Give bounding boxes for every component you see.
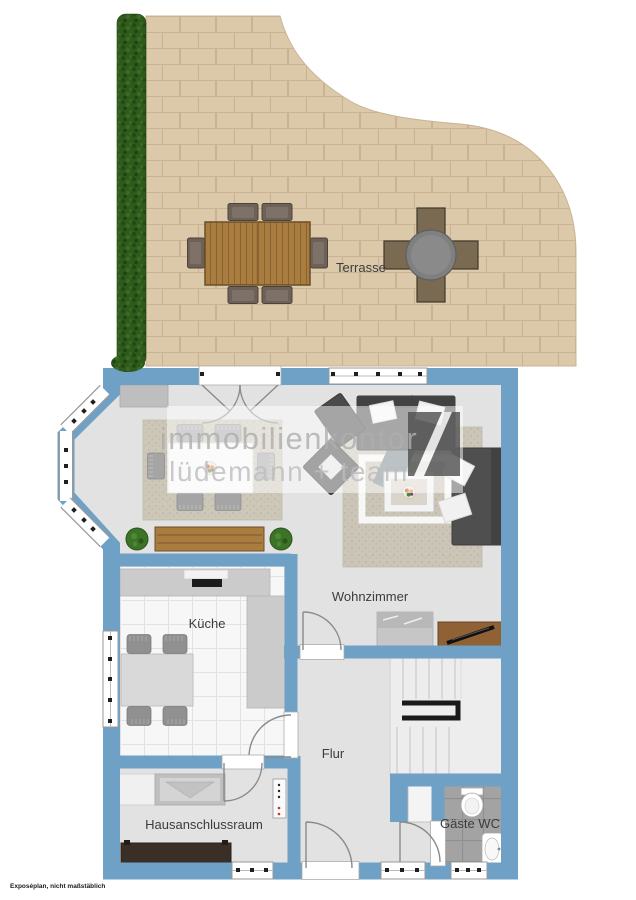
electrical-panel [273,779,286,818]
window-top [329,368,427,384]
entry-cabinet [120,385,168,407]
window-kitchen [103,631,118,727]
utility-cabinet [119,774,155,805]
window-bottom-utility [232,862,273,879]
room-label-hausanschlussraum: Hausanschlussraum [145,817,263,832]
sideboard [155,527,264,551]
tv-board [438,622,502,648]
room-label-terrasse: Terrasse [336,260,386,275]
lowboard-bench [377,612,433,650]
window-bottom-hall [381,862,425,879]
room-label-flur: Flur [322,746,345,761]
kitchen-counter-right [247,596,285,708]
disclaimer-text: Exposéplan, nicht maßstäblich [10,883,105,890]
watermark: immobilienkontor lüdemann + team [160,406,463,493]
watermark-line1: immobilienkontor [160,421,418,456]
understair-cupboard [408,785,433,822]
hedge-bush [111,354,145,372]
staircase [390,653,503,775]
kitchen-table [121,654,193,706]
toilet [461,788,483,817]
room-label-gaeste-wc: Gäste WC [440,816,500,831]
floorplan-page: Terrasse [0,0,636,900]
plant-right [270,528,292,550]
sink [482,833,503,865]
plant-left [126,528,148,550]
kitchen-cooktop [192,579,222,587]
room-label-kueche: Küche [189,616,226,631]
room-label-wohnzimmer: Wohnzimmer [332,589,409,604]
window-bottom-wc [451,862,487,879]
floorplan-drawing: Terrasse [0,0,636,900]
kitchen-sink [184,570,228,579]
watermark-line2: lüdemann + team [169,456,409,487]
